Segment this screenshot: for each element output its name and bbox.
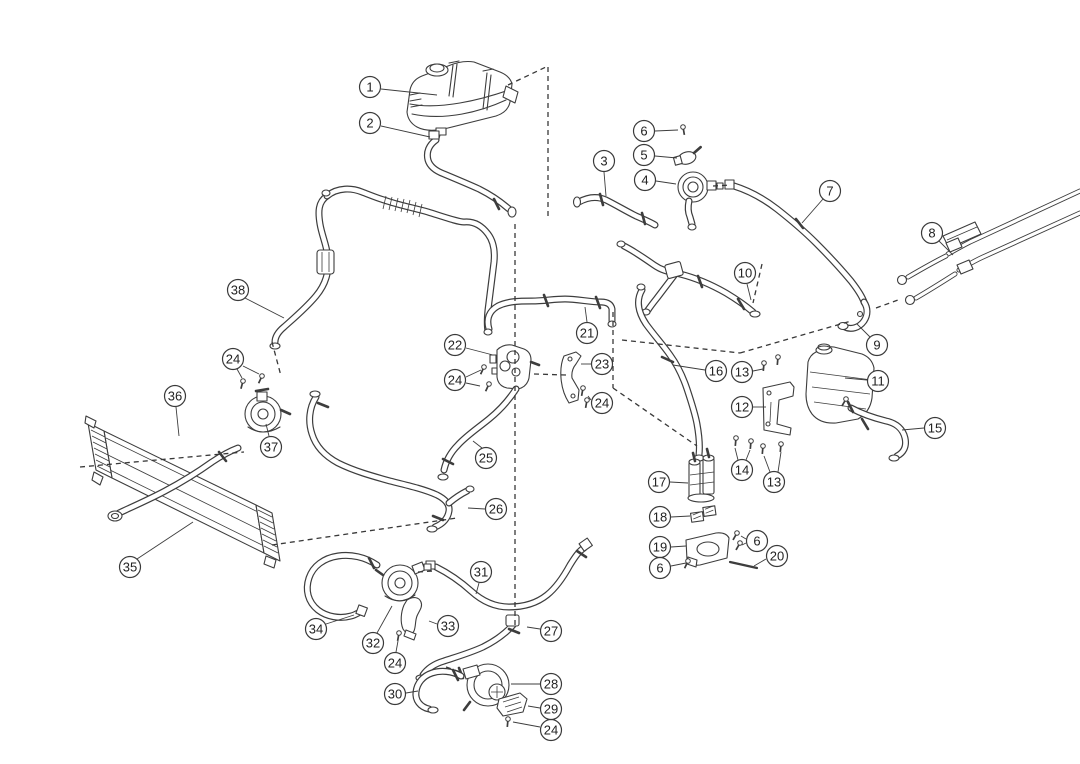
callout-29: 29 [528,699,562,720]
callout-9: 9 [857,324,888,356]
callout-leader-line [604,172,606,196]
callout-leader-line [735,448,738,460]
callout-number: 24 [226,352,240,367]
callout-leader-line [473,441,482,448]
screw-icon [481,365,487,375]
aux-pump-4-illustration [678,172,723,230]
callout-32: 32 [363,606,393,654]
callout-5: 5 [634,145,678,166]
callout-leader-line [377,606,392,633]
screw-icon [736,541,742,550]
callout-number: 16 [709,364,723,379]
hose-network-illustration [270,189,494,349]
callout-19: 19 [650,537,687,558]
hose-3-illustration [574,194,656,225]
screw-icon [749,439,754,449]
callout-leader-line [753,369,763,371]
cooler-pipes-illustration [898,191,1080,305]
holder-19-illustration [686,533,729,567]
callout-number: 5 [640,148,647,163]
dashed-line [508,67,546,85]
cooling-system-exploded-diagram: 1234567891011121314131516171819620621222… [0,0,1080,764]
callout-number: 33 [441,619,455,634]
screw-icon [486,382,492,392]
bracket-33-illustration [401,598,421,640]
callout-4: 4 [635,170,677,191]
callout-leader-line [671,516,690,517]
callout-24: 24 [445,370,482,391]
callout-number: 34 [309,622,323,637]
callout-leader-line [468,508,485,509]
callout-6: 6 [650,558,687,579]
dashed-line [622,340,740,353]
callout-10: 10 [735,263,756,301]
callout-number: 27 [544,624,558,639]
callout-leader-line [528,706,540,708]
screw-icon [761,444,766,454]
callout-number: 4 [641,173,648,188]
callout-24: 24 [513,720,562,741]
callout-number: 24 [544,723,558,738]
callout-number: 20 [770,549,784,564]
screw-icon [585,398,590,408]
water-pump-37-illustration [245,389,290,432]
radiator-illustration [85,416,280,568]
callout-number: 14 [735,463,749,478]
callout-7: 7 [802,181,841,224]
callout-number: 15 [928,421,942,436]
screw-icon [506,717,511,727]
callout-leader-line [902,428,924,430]
callout-number: 18 [653,510,667,525]
callout-17: 17 [649,472,689,493]
callout-12: 12 [732,397,767,418]
hose-15-illustration [848,402,906,461]
screw-icon [259,374,265,384]
callout-number: 10 [738,266,752,281]
callout-number: 6 [640,124,647,139]
callout-number: 38 [231,283,245,298]
callout-leader-line [466,348,493,355]
callout-number: 8 [928,226,935,241]
callout-number: 25 [479,451,493,466]
callout-leader-line [671,546,686,547]
callout-number: 28 [544,677,558,692]
callout-leader-line [585,307,587,322]
callout-number: 6 [656,561,663,576]
callout-14: 14 [732,448,753,481]
callout-24: 24 [223,349,260,379]
callout-number: 31 [474,565,488,580]
callout-33: 33 [429,616,459,637]
screw-icon [397,631,402,641]
sensor-5-illustration [673,147,704,167]
callout-leader-line [670,482,688,483]
callout-27: 27 [527,621,562,642]
bracket-12-illustration [763,382,794,435]
callout-leader-line [243,366,259,374]
pump-32-illustration [376,562,431,601]
callout-number: 30 [388,687,402,702]
callout-number: 22 [448,338,462,353]
callout-leader-line [245,298,284,318]
callout-number: 32 [366,636,380,651]
elbow-9-illustration [838,302,867,330]
callout-36: 36 [165,386,186,437]
screw-icon [241,379,246,389]
callout-6: 6 [741,531,768,552]
callout-number: 17 [652,475,666,490]
callout-leader-line [802,199,823,223]
clamp-18-illustration [690,506,717,522]
callout-15: 15 [902,418,946,439]
callout-number: 23 [595,357,609,372]
assembly-dashed-lines [80,67,898,673]
callout-leader-line [396,641,398,652]
callout-26: 26 [468,499,507,520]
pin-20 [730,562,757,568]
callout-38: 38 [228,280,285,319]
callout-leader-line [741,536,746,539]
callout-leader-line [671,563,686,566]
callout-leader-line [527,627,540,629]
callout-number: 13 [767,475,781,490]
callout-28: 28 [511,674,562,695]
callout-leader-line [137,522,193,559]
callout-number: 24 [595,396,609,411]
callout-number: 21 [580,326,594,341]
callout-leader-line [754,559,766,566]
pin-icon [730,562,757,568]
callout-number: 24 [448,373,462,388]
callout-leader-line [237,369,242,378]
callout-18: 18 [650,507,691,528]
callout-number: 13 [735,365,749,380]
callout-number: 1 [366,80,373,95]
callout-leader-line [466,383,480,386]
callout-35: 35 [120,522,194,578]
tank-hose-illustration [427,131,516,217]
callout-24: 24 [385,641,406,674]
dashed-line [876,300,898,308]
callout-3: 3 [594,151,615,197]
callout-23: 23 [581,354,613,375]
callout-leader-line [655,130,678,131]
hose-25-illustration [438,389,516,480]
callout-leader-line [746,450,750,460]
callout-leader-line [778,452,781,472]
callout-number: 11 [871,374,885,389]
callout-number: 24 [388,656,402,671]
dashed-line [613,388,697,446]
screw-icon [681,125,686,135]
callout-leader-line [747,284,751,300]
callout-leader-line [764,456,770,472]
screw-icon [733,531,739,540]
callout-25: 25 [473,441,497,469]
callout-22: 22 [445,335,494,356]
callout-number: 37 [264,440,278,455]
callout-number: 2 [366,116,373,131]
callout-leader-line [466,370,481,377]
callout-number: 9 [873,338,880,353]
screw-icon [734,436,739,446]
callout-number: 6 [753,534,760,549]
screw-icon [779,442,784,452]
callout-number: 26 [489,502,503,517]
bracket-23-illustration [561,352,581,403]
callout-21: 21 [577,307,598,344]
callout-number: 36 [168,389,182,404]
callout-leader-line [513,722,540,727]
callout-24: 24 [588,393,613,414]
hose-34-illustration [307,555,377,617]
callout-leader-line [429,621,437,624]
callout-number: 12 [735,400,749,415]
parts-diagram-page: 1234567891011121314131516171819620621222… [0,0,1080,764]
screw-icon [776,355,781,365]
callout-leader-line [656,181,676,184]
hose-31-illustration [426,538,592,607]
callout-number: 19 [653,540,667,555]
callout-number: 35 [123,560,137,575]
hose-30-illustration [416,670,461,713]
callout-6: 6 [634,121,679,142]
callout-number: 29 [544,702,558,717]
expansion-tank-illustration [407,61,518,142]
screw-icon [581,386,586,396]
callout-13: 13 [732,362,764,383]
callout-number: 7 [826,184,833,199]
callout-13: 13 [764,452,785,493]
callout-number: 3 [600,154,607,169]
callout-leader-line [176,407,179,436]
